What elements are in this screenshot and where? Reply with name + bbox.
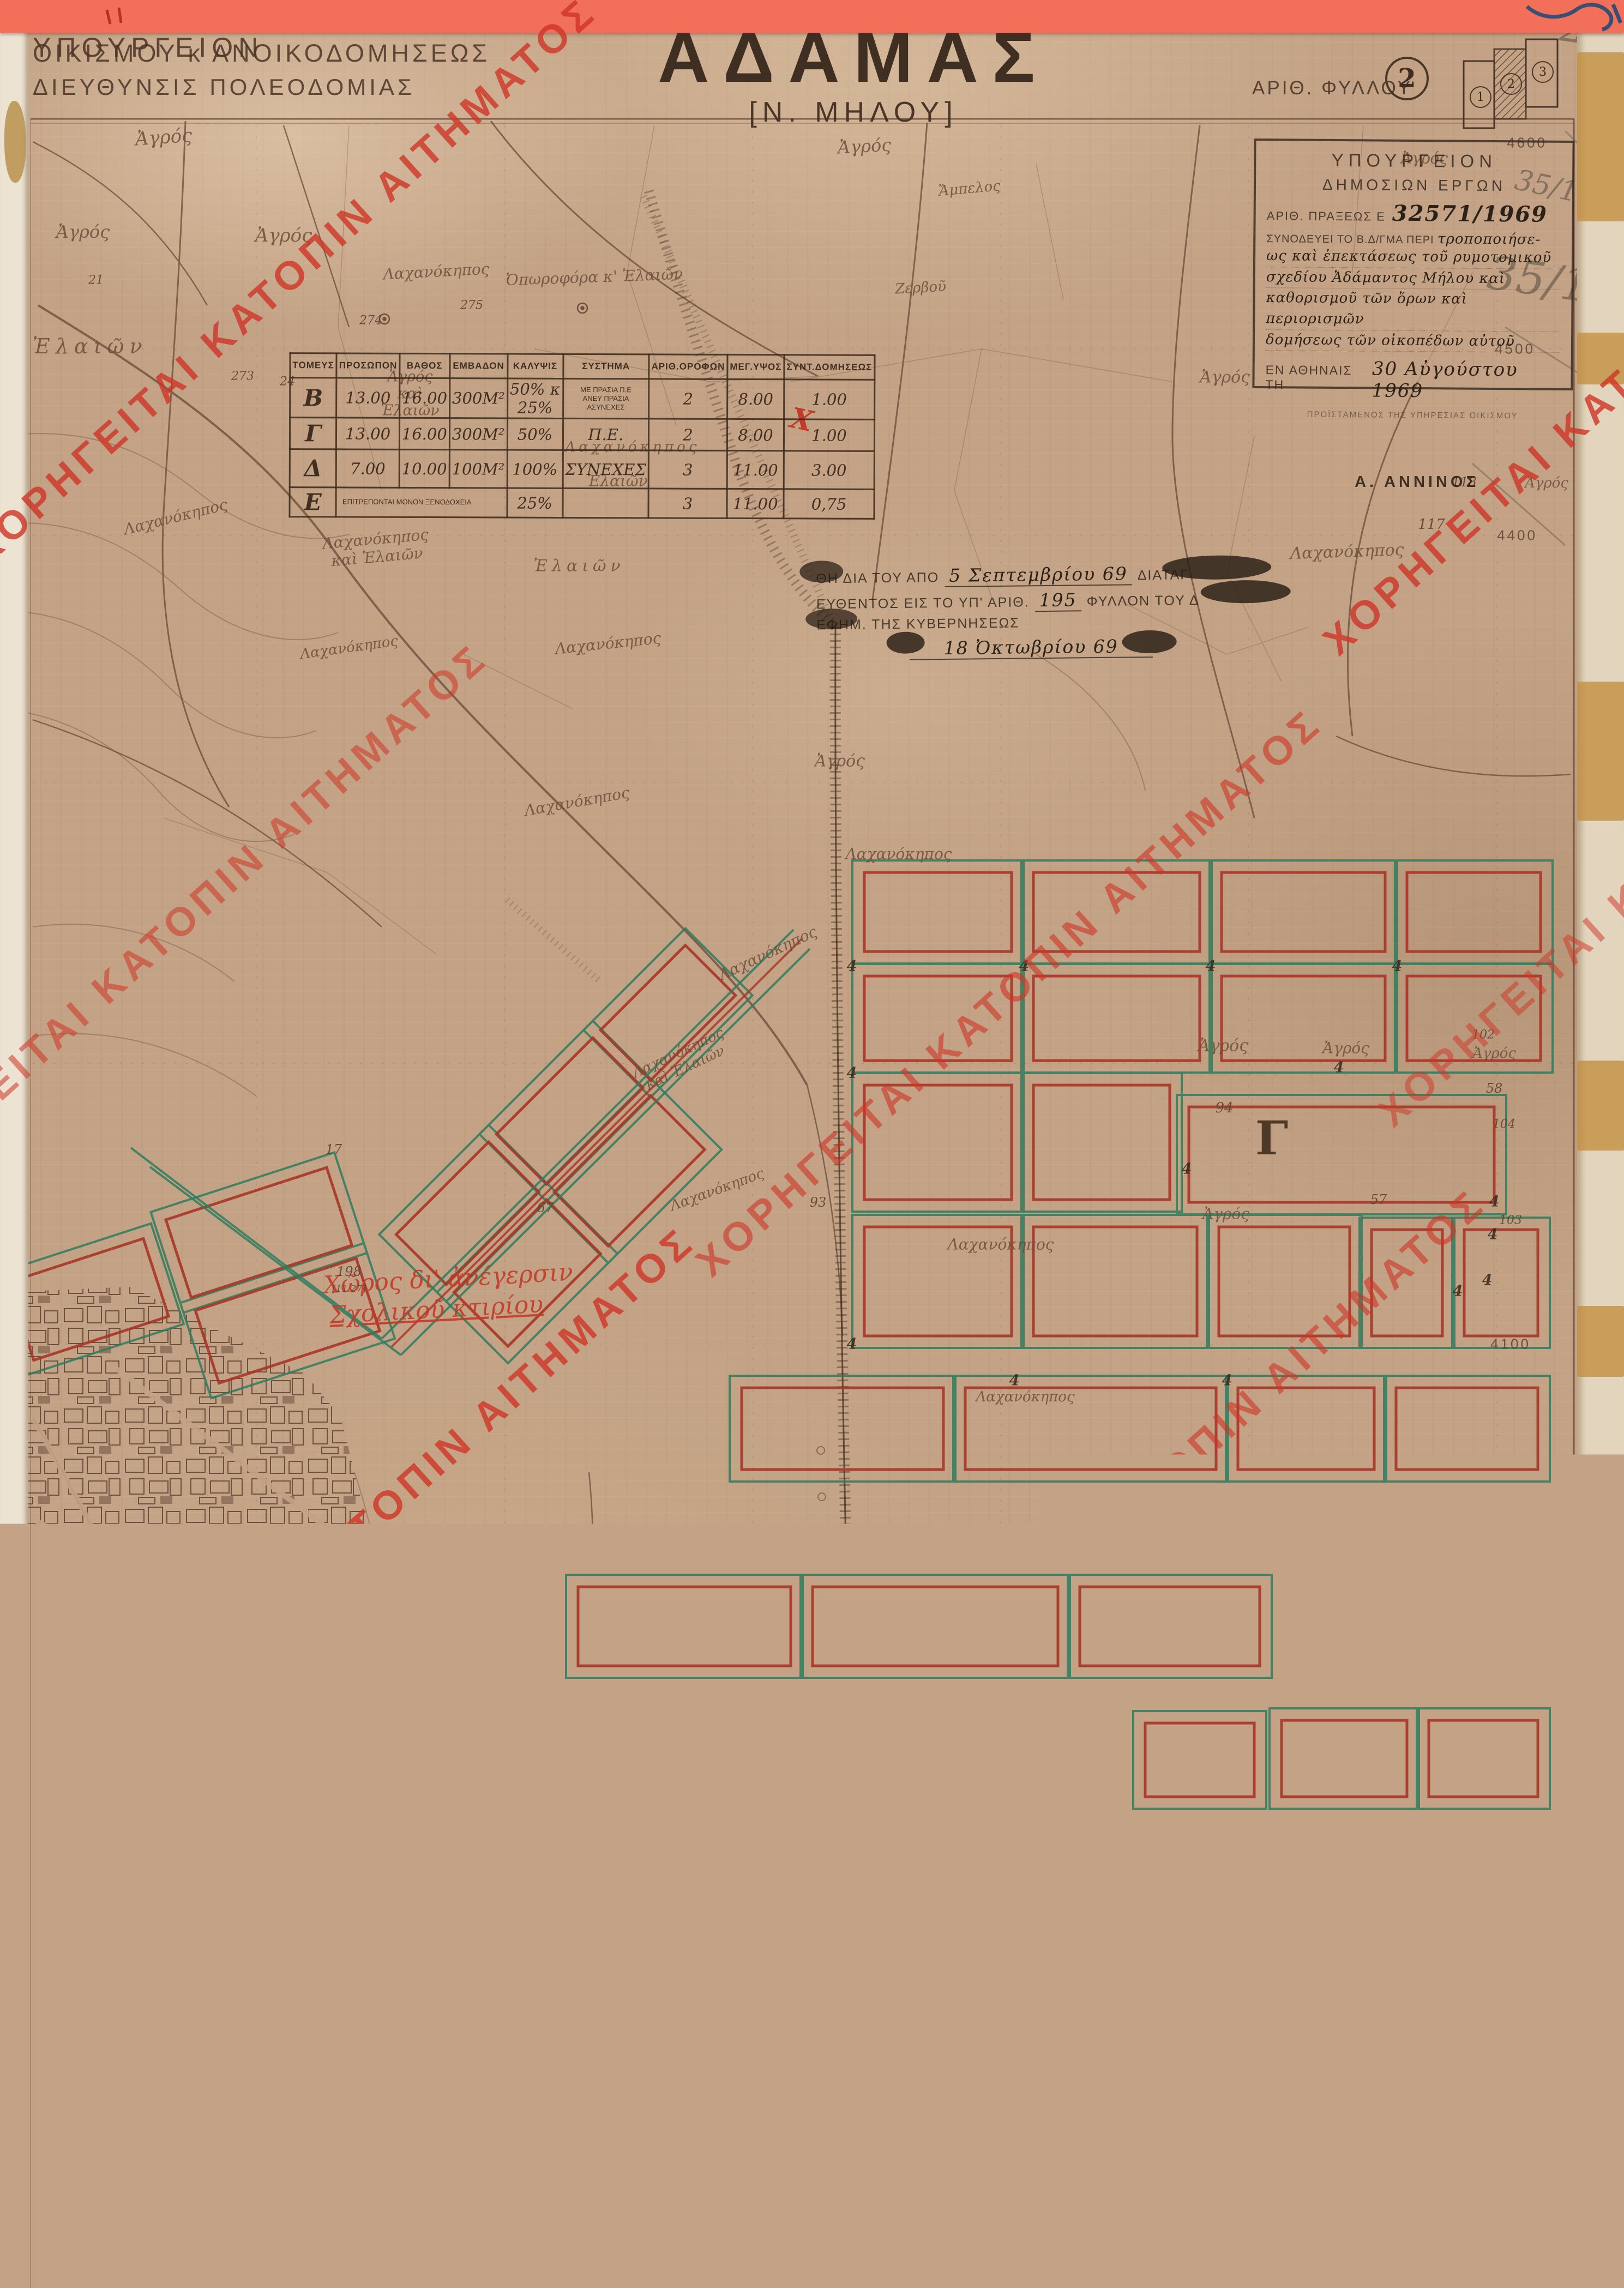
title-block: ΑΔΑΜΑΣ [Ν. ΜΗΛΟΥ] [627, 22, 1080, 129]
tape-piece [1577, 1663, 1624, 1780]
stamp-line1: ΥΠΟΥΡΓΕΙΟΝ [1267, 149, 1561, 172]
table-cell: 1.00 [784, 380, 875, 420]
decree-subject-line: δομήσεως τῶν οἰκοπέδων αὐτοῦ [1266, 330, 1560, 353]
ministry-approval-stamp: ΥΠΟΥΡΓΕΙΟΝ ΔΗΜΟΣΙΩΝ ΕΡΓΩΝ ΑΡΙΘ. ΠΡΑΞΕΩΣ … [1252, 139, 1574, 390]
table-cell: 11.00 [727, 489, 784, 518]
act-label: ΑΡΙΘ. ΠΡΑΞΕΩΣ Ε [1267, 209, 1386, 224]
pub-line2-post: ΦΥΛΛΟΝ ΤΟΥ Δ [1087, 593, 1200, 610]
table-cell: 1.00 [784, 419, 874, 451]
table-column-header: ΕΜΒΑΔΟΝ [450, 354, 508, 378]
table-cell: 16.00 [399, 378, 449, 418]
table-cell: 13.00 [336, 418, 400, 449]
regulations-table: ΤΟΜΕΥΣΠΡΟΣΩΠΟΝΒΑΘΟΣΕΜΒΑΔΟΝΚΑΛΥΨΙΣΣΥΣΤΗΜΑ… [288, 352, 875, 520]
table-column-header: ΚΑΛΥΨΙΣ [507, 354, 563, 378]
table-cell: Π.Ε. [563, 418, 649, 450]
table-cell: 300Μ² [449, 378, 507, 418]
table-column-header: ΑΡΙΘ.ΟΡΟΦΩΝ [649, 354, 727, 380]
table-header-row: ΤΟΜΕΥΣΠΡΟΣΩΠΟΝΒΑΘΟΣΕΜΒΑΔΟΝΚΑΛΥΨΙΣΣΥΣΤΗΜΑ… [290, 353, 875, 380]
table-cell: ΣΥΝΕΧΕΣ [563, 450, 649, 489]
sheet-number-badge: 2 [1385, 57, 1429, 100]
tape-piece [1577, 1510, 1624, 1576]
decree-subject-start: τροποποιήσε- [1437, 231, 1541, 248]
table-cell: 3 [648, 450, 727, 489]
table-cell: 25% [507, 488, 562, 517]
pub-date2: 18 Ὀκτωβρίου 69 [910, 635, 1153, 660]
table-cell: 13.00 [336, 378, 400, 418]
sheet-index-1: 1 [1470, 86, 1491, 108]
decree-subject-line: ως καὶ ἐπεκτάσεως τοῦ ρυμοτομικοῦ [1266, 246, 1561, 269]
table-cell: 100% [507, 450, 563, 488]
sheet-index-2: 2 [1500, 73, 1522, 95]
band-marks [0, 0, 1624, 33]
table-row: Γ13.0016.00300Μ²50%Π.Ε.28.001.00 [290, 418, 874, 451]
tape-piece [1577, 333, 1624, 384]
table-cell: ΕΠΙΤΡΕΠΟΝΤΑΙ ΜΟΝΟΝ ΞΕΝΟΔΟΧΕΙΑ [336, 487, 507, 517]
table-cell: 0,75 [784, 489, 874, 519]
blue-pen-scribble [1527, 4, 1621, 29]
ink-blot [1122, 630, 1176, 653]
decree-subject-line: καθορισμοῦ τῶν ὅρων καὶ περιορισμῶν [1266, 288, 1561, 332]
tape-piece [1577, 52, 1624, 221]
decree-subject-line: σχεδίου Ἀδάμαντος Μήλου καὶ [1266, 267, 1561, 290]
table-cell: 2 [649, 379, 727, 419]
table-cell: Δ [290, 449, 336, 487]
table-cell [562, 488, 648, 518]
table-cell: 3 [648, 489, 727, 519]
signature-name: Α. ΑΝΝΙΝΟΣ [1275, 473, 1559, 491]
place-label: ΕΝ ΑΘΗΝΑΙΣ ΤΗ [1265, 363, 1367, 393]
table-cell: 100Μ² [449, 450, 507, 488]
red-ticks [107, 8, 121, 24]
left-paper-edge [0, 0, 28, 2288]
ministry-line3: ΔΙΕΥΘΥΝΣΙΣ ΠΟΛΕΟΔΟΜΙΑΣ [33, 74, 393, 100]
table-cell: 50% [507, 418, 563, 450]
table-cell: Γ [290, 418, 336, 449]
publication-stamp: ΘΗ ΔΙΑ ΤΟΥ ΑΠΟ 5 Σεπτεμβρίου 69 ΔΙΑΤΑΓ Ε… [816, 558, 1275, 661]
table-column-header: ΣΥΣΤΗΜΑ [563, 354, 649, 379]
tape-piece [1577, 682, 1624, 821]
pub-date1: 5 Σεπτεμβρίου 69 [945, 563, 1132, 587]
table-cell: 10.00 [399, 449, 449, 487]
table-cell: 16.00 [399, 418, 449, 449]
table-cell: ΜΕ ΠΡΑΣΙΑ Π.Ε ΑΝΕΥ ΠΡΑΣΙΑ ΑΣΥΝΕΧΕΣ [563, 378, 649, 419]
tape-piece [1577, 1306, 1624, 1377]
tape-piece [1577, 2200, 1624, 2288]
left-edge-stain [4, 101, 26, 183]
table-cell: 2 [648, 419, 727, 451]
table-column-header: ΜΕΓ.ΥΨΟΣ [727, 354, 784, 379]
table-column-header: ΣΥΝΤ.ΔΟΜΗΣΕΩΣ [784, 355, 875, 380]
sheet-index-3: 3 [1532, 61, 1554, 83]
table-cell: Ε [290, 487, 336, 517]
table-row: ΕΕΠΙΤΡΕΠΟΝΤΑΙ ΜΟΝΟΝ ΞΕΝΟΔΟΧΕΙΑ25%311.000… [290, 487, 874, 519]
pub-line2-pre: ΕΥΘΕΝΤΟΣ ΕΙΣ ΤΟ ΥΠ' ΑΡΙΘ. [816, 594, 1030, 612]
table-column-header: ΒΑΘΟΣ [400, 353, 450, 378]
date-handwritten: 30 Αὐγούστου 1969 [1372, 358, 1560, 403]
table-cell: 3.00 [784, 451, 874, 490]
right-paper-margin [1577, 33, 1624, 2288]
tape-piece [1577, 1061, 1624, 1151]
ministry-line1: ΥΠΟΥΡΓΕΙΟΝ [33, 32, 263, 63]
table-cell: Β [290, 378, 337, 418]
table-cell: 8.00 [727, 419, 784, 450]
act-number: 32571/1969 [1392, 201, 1548, 227]
ministry-header: ΥΠΟΥΡΓΕΙΟΝ ΟΙΚΙΣΜΟΥ κ ΑΝΟΙΚΟΔΟΜΗΣΕΩΣ ΔΙΕ… [33, 32, 393, 100]
table-cell: 7.00 [336, 449, 400, 487]
decree-label: ΣΥΝΟΔΕΥΕΙ ΤΟ Β.Δ/ΓΜΑ ΠΕΡΙ [1266, 233, 1434, 246]
table-row: Β13.0016.00300Μ²50% κ 25%ΜΕ ΠΡΑΣΙΑ Π.Ε Α… [290, 378, 875, 420]
table-cell: 8.00 [727, 379, 784, 419]
map-sheet-page: ἈγρόςἈγρόςἘλαιῶνἈγρόςἈγρός καὶ ἘλαιῶνΛαχ… [0, 0, 1624, 2288]
table-column-header: ΠΡΟΣΩΠΟΝ [336, 353, 400, 378]
stamp-line2: ΔΗΜΟΣΙΩΝ ΕΡΓΩΝ [1267, 176, 1561, 195]
table-cell: 50% κ 25% [507, 378, 563, 418]
table-row: Δ7.0010.00100Μ²100%ΣΥΝΕΧΕΣ311.003.00 [290, 449, 874, 490]
pub-gazette-number: 195 [1034, 589, 1081, 612]
tape-piece [1577, 2004, 1624, 2132]
page-subtitle: [Ν. ΜΗΛΟΥ] [627, 96, 1080, 129]
table-column-header: ΤΟΜΕΥΣ [290, 353, 337, 378]
top-color-band [0, 0, 1624, 33]
table-cell: 300Μ² [449, 418, 507, 450]
decree-subject: ως καὶ ἐπεκτάσεως τοῦ ρυμοτομικοῦσχεδίου… [1266, 246, 1561, 353]
table-cell: 11.00 [727, 450, 784, 489]
